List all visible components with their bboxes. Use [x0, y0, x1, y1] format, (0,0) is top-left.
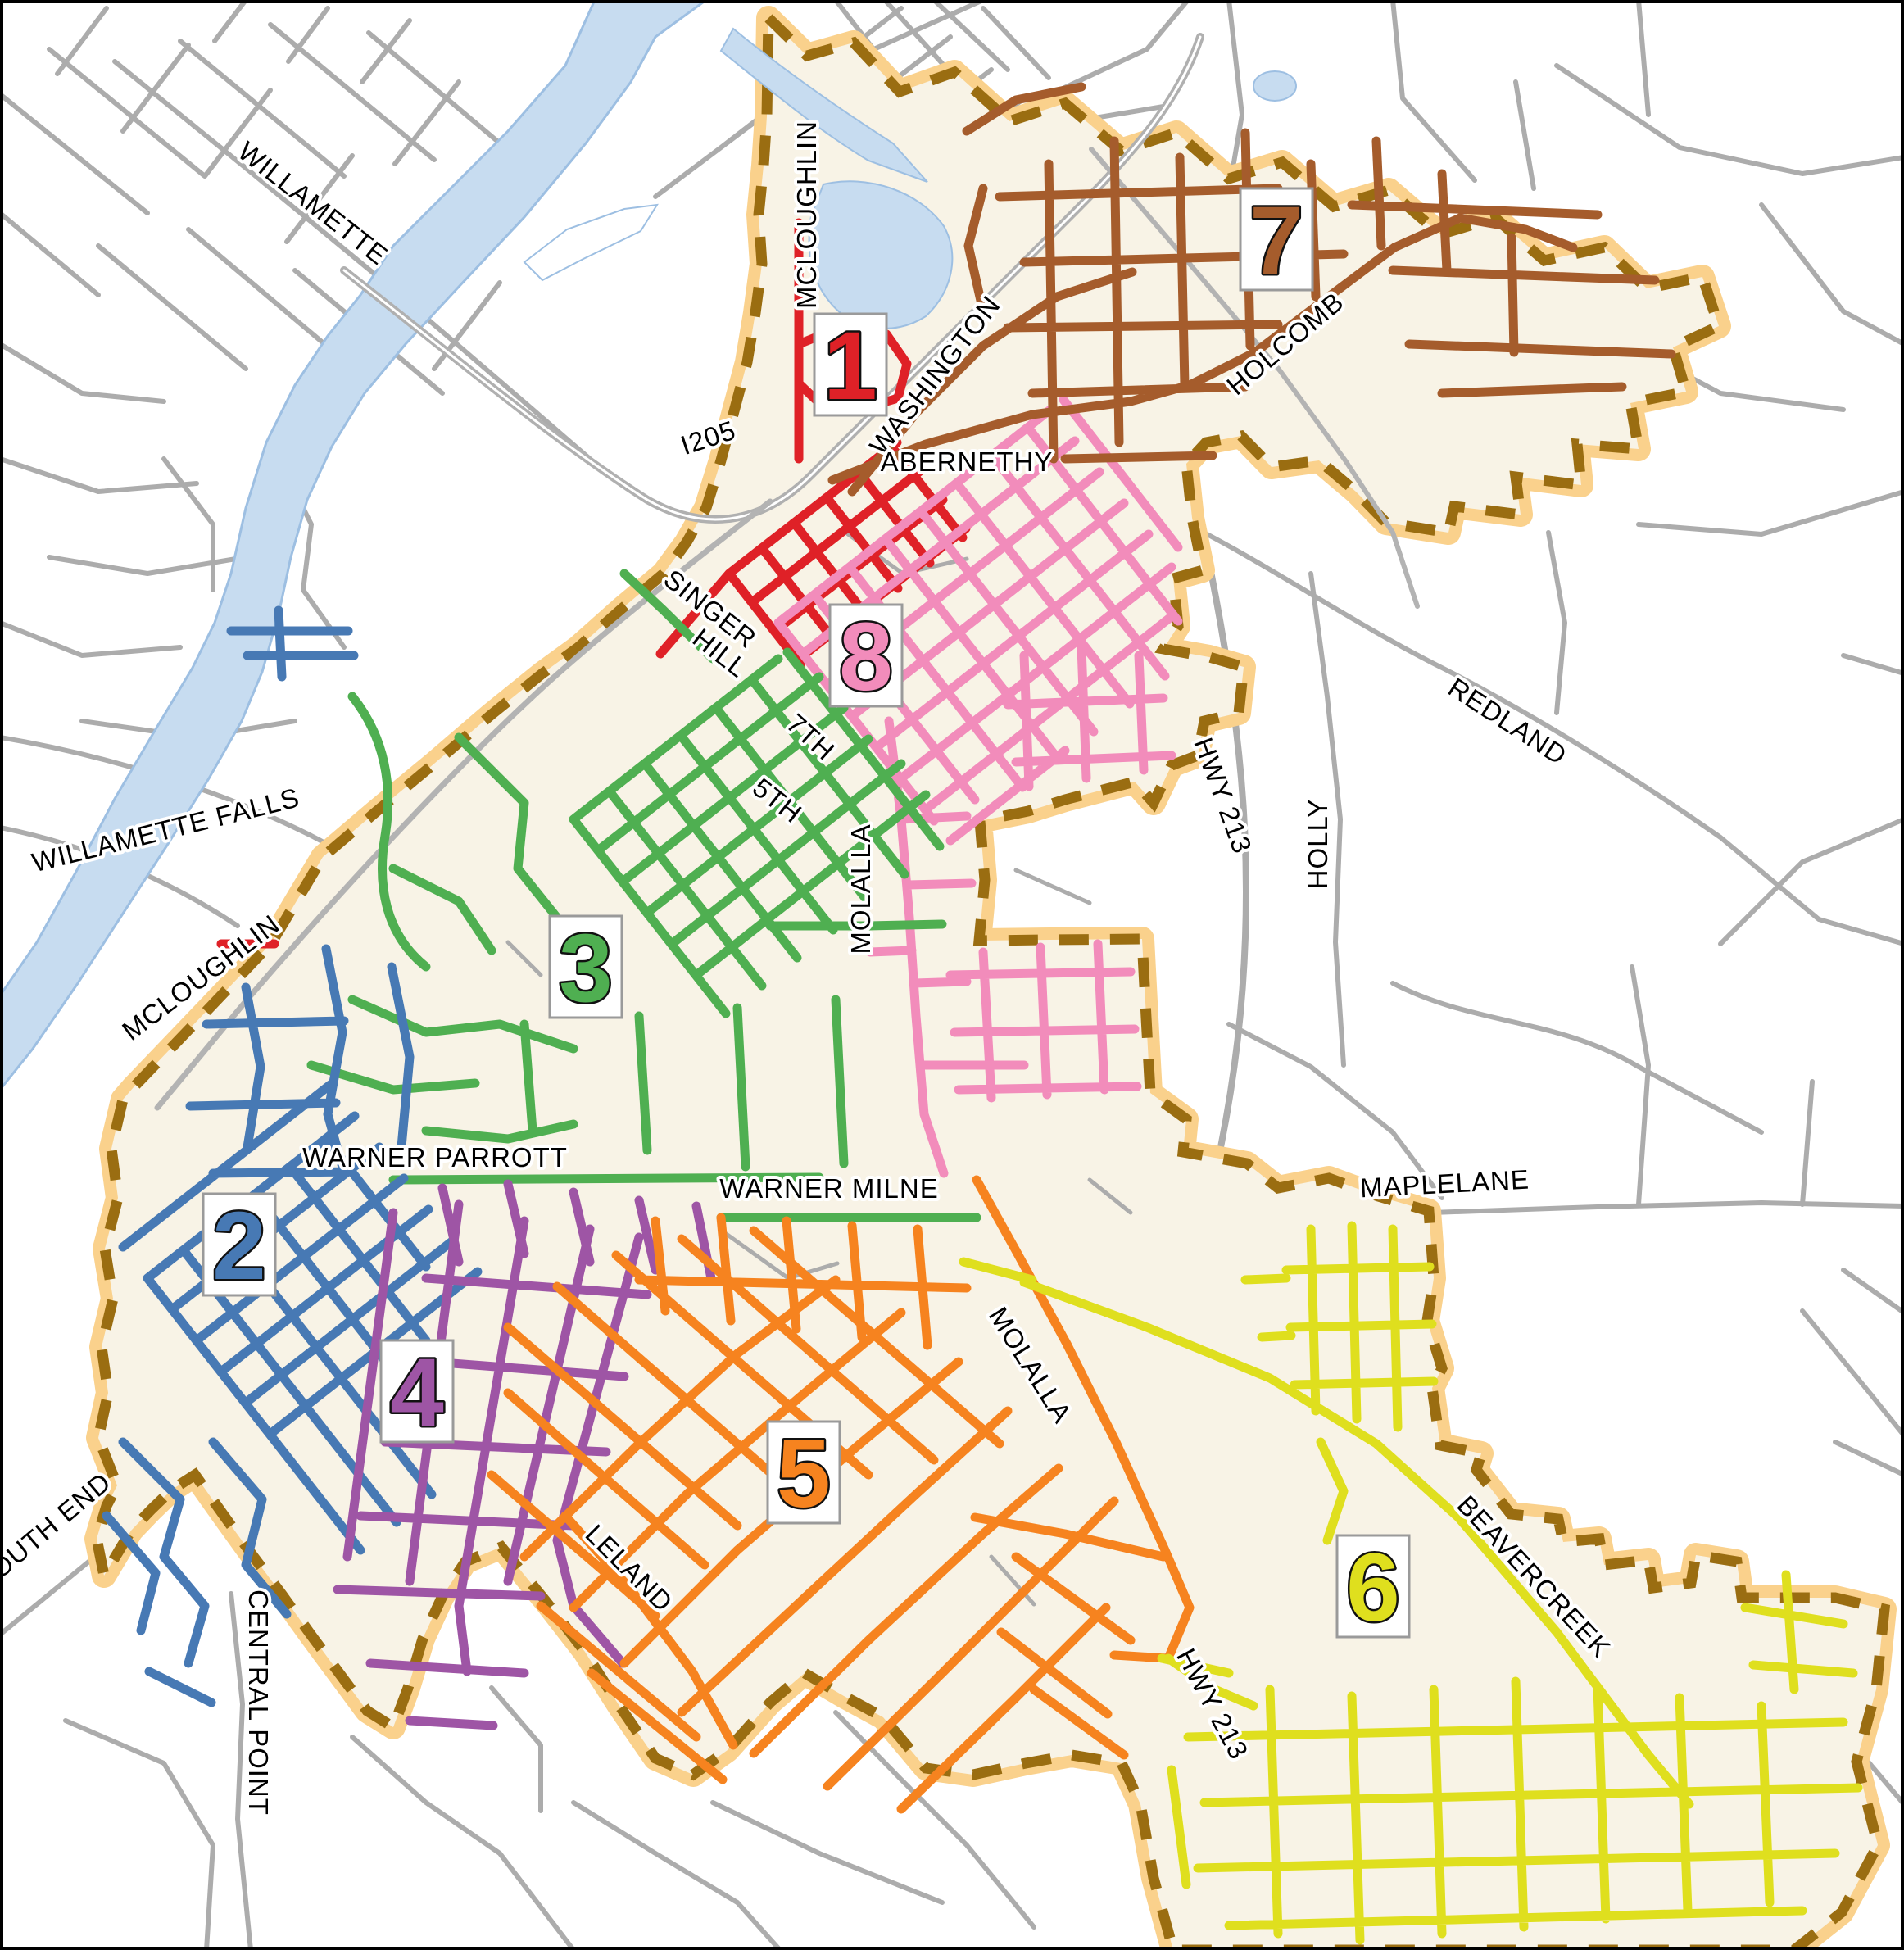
map-canvas[interactable]: WILLAMETTEMCLOUGHLINI205WASHINGTONABERNE…: [0, 0, 1904, 1950]
street-label-warner-parrott-15: WARNER PARROTT: [302, 1142, 568, 1172]
street-label-abernethy-4: ABERNETHY: [881, 447, 1054, 477]
district-map: WILLAMETTEMCLOUGHLINI205WASHINGTONABERNE…: [0, 0, 1904, 1950]
street-label-molalla-10: MOLALLA: [845, 823, 876, 954]
district-number-1: 1: [823, 312, 877, 420]
small-pond: [1253, 71, 1296, 101]
street-label-mcloughlin-1: MCLOUGHLIN: [791, 120, 822, 309]
district-number-4: 4: [390, 1339, 444, 1447]
district-number-2: 2: [212, 1192, 266, 1300]
district-label-3: 3: [550, 914, 622, 1023]
street-label-holly-12: HOLLY: [1303, 799, 1333, 890]
district-label-5: 5: [768, 1420, 840, 1528]
district-label-6: 6: [1337, 1534, 1409, 1642]
district-label-2: 2: [203, 1192, 275, 1300]
district-label-7: 7: [1240, 187, 1312, 295]
street-label-warner-milne-16: WARNER MILNE: [719, 1173, 938, 1204]
district-number-5: 5: [777, 1420, 831, 1528]
street-label-central-point-22: CENTRAL POINT: [243, 1589, 274, 1816]
district-number-7: 7: [1249, 187, 1303, 295]
district-label-8: 8: [830, 603, 902, 711]
district-number-3: 3: [559, 914, 613, 1023]
district-label-1: 1: [814, 312, 886, 420]
district-label-4: 4: [381, 1339, 453, 1447]
district-number-6: 6: [1346, 1534, 1400, 1642]
district-number-8: 8: [839, 603, 893, 711]
